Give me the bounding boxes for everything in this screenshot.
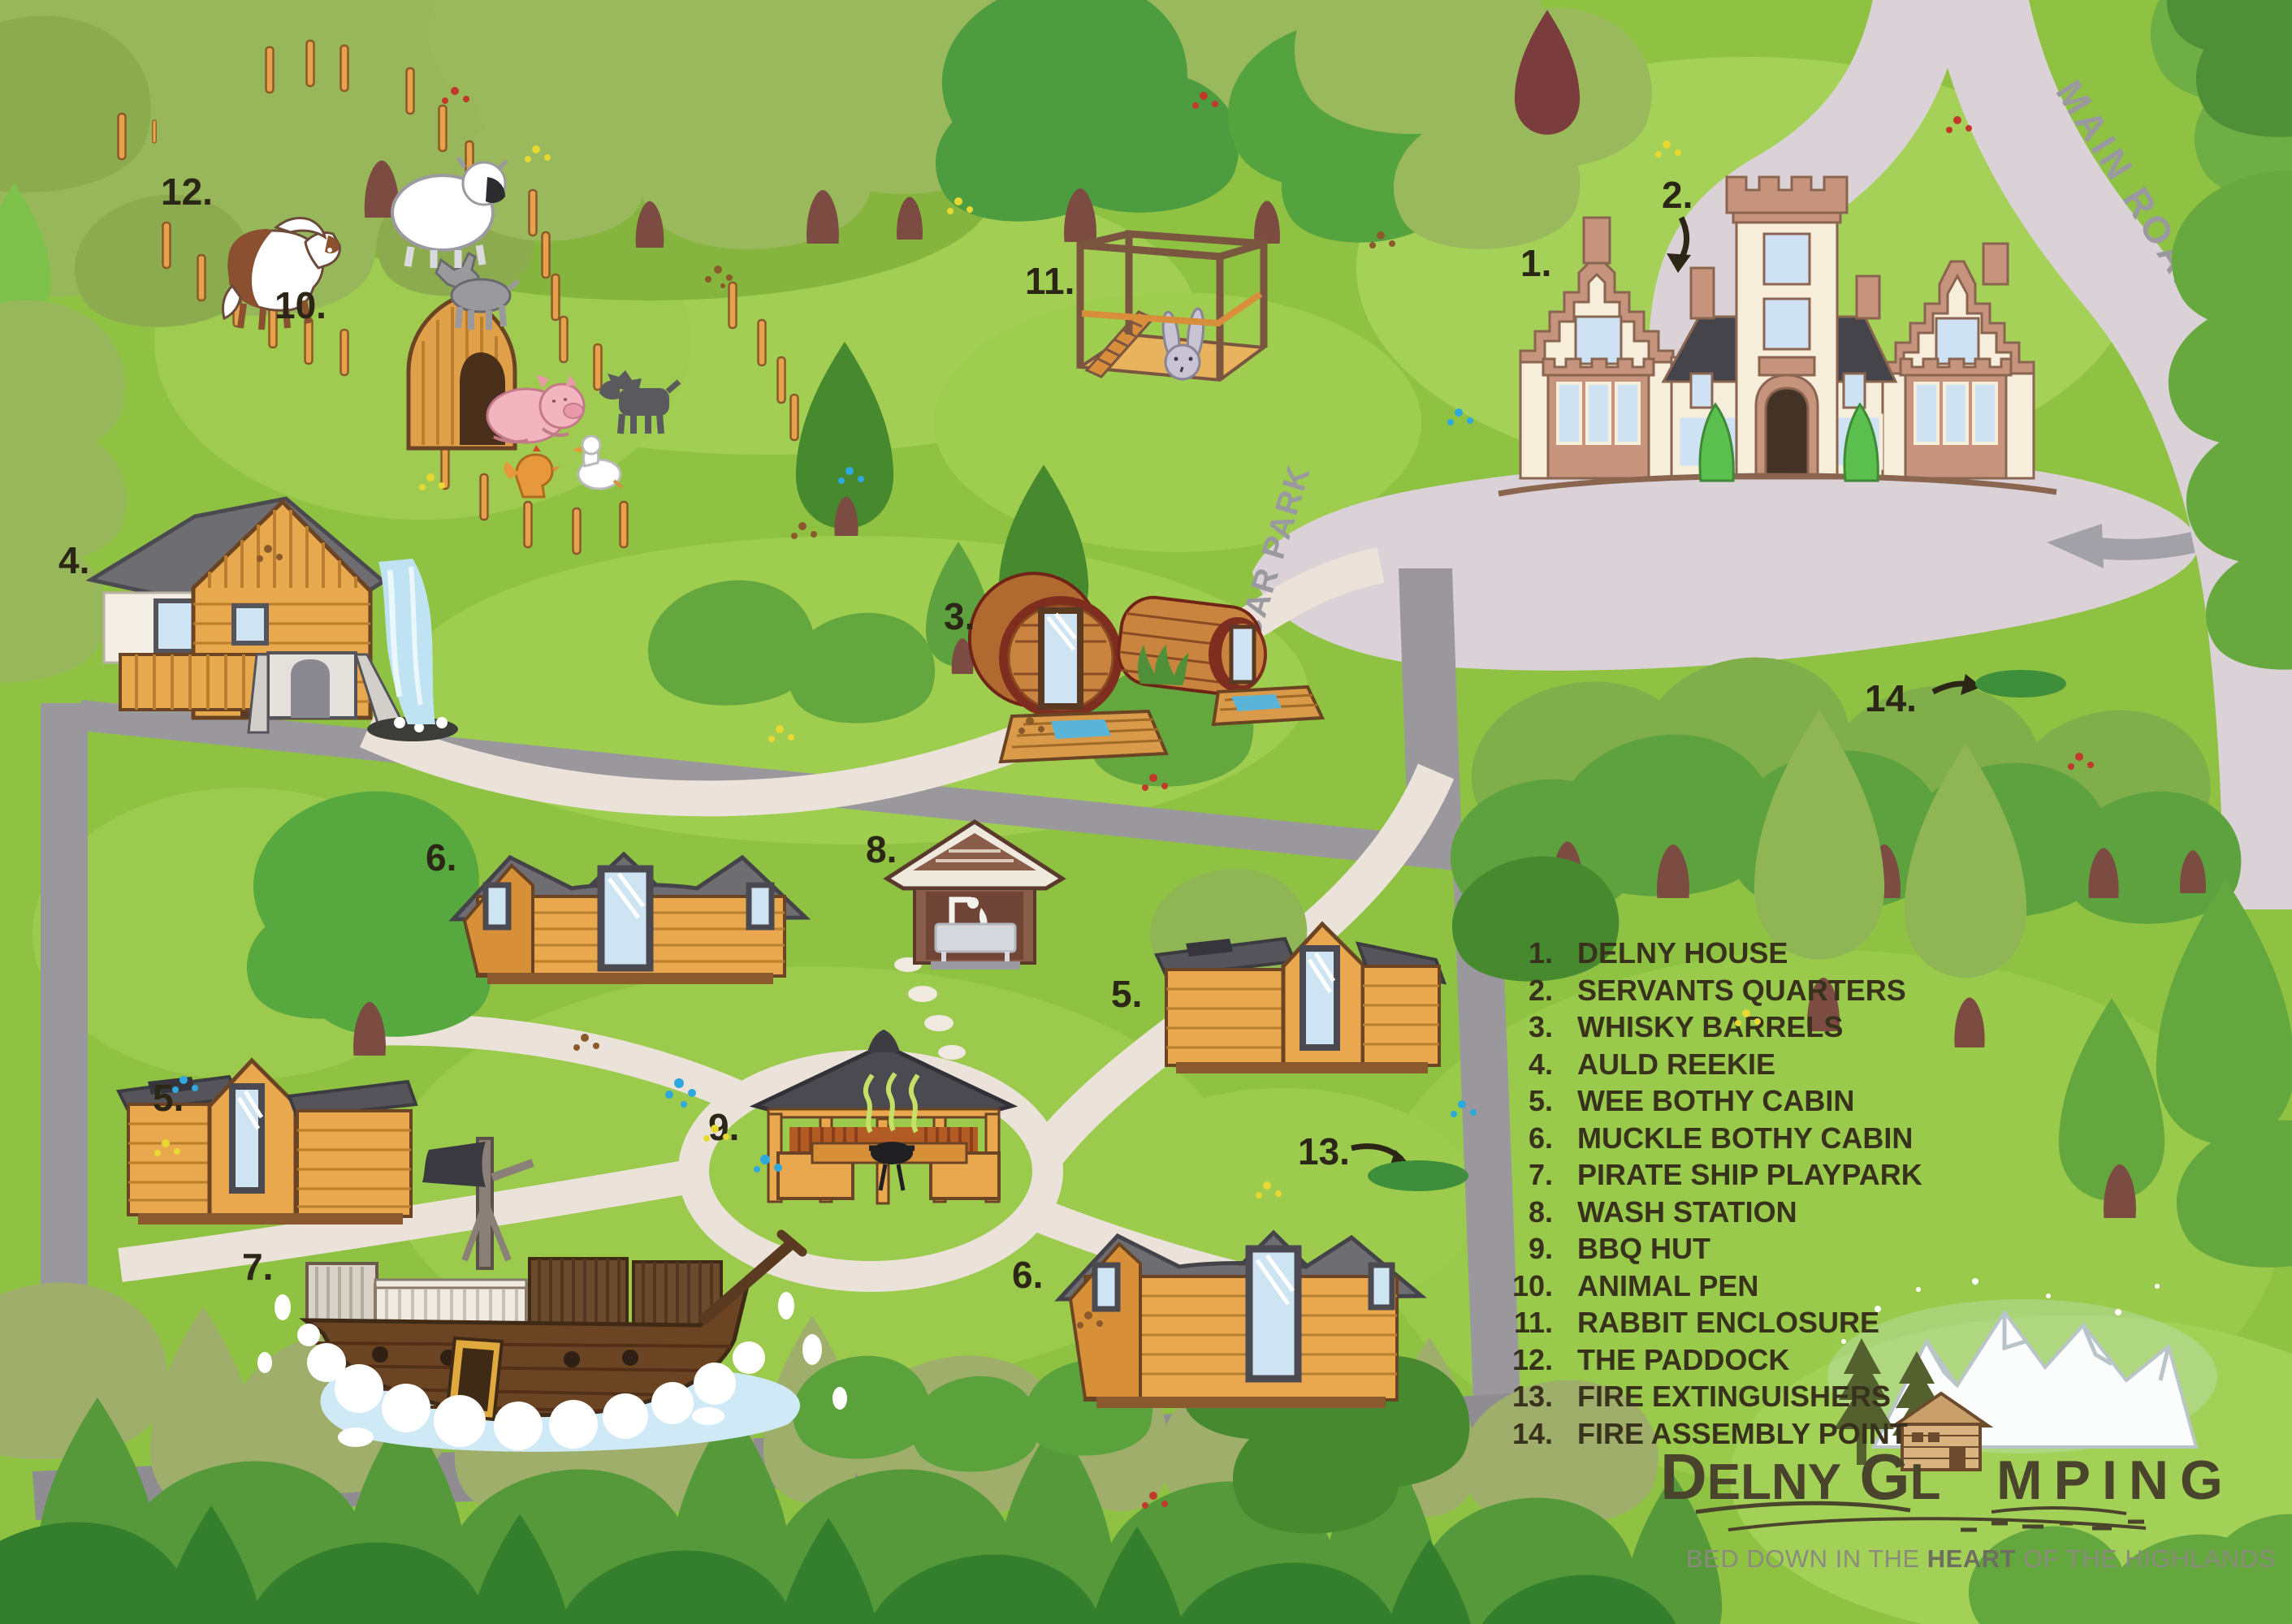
svg-text:8.: 8. (866, 828, 897, 870)
svg-text:ANIMAL PEN: ANIMAL PEN (1577, 1269, 1758, 1302)
svg-text:14.: 14. (1865, 677, 1917, 719)
svg-text:12.: 12. (161, 171, 213, 213)
svg-text:13.: 13. (1298, 1130, 1350, 1173)
svg-text:1.: 1. (1520, 242, 1551, 284)
svg-text:FIRE EXTINGUISHERS: FIRE EXTINGUISHERS (1577, 1380, 1891, 1413)
svg-text:3.: 3. (944, 595, 975, 637)
svg-text:13.: 13. (1512, 1380, 1553, 1413)
svg-text:WASH STATION: WASH STATION (1577, 1195, 1797, 1229)
svg-text:5.: 5. (1111, 973, 1142, 1015)
svg-text:MUCKLE BOTHY CABIN: MUCKLE BOTHY CABIN (1577, 1121, 1913, 1155)
svg-text:AULD REEKIE: AULD REEKIE (1577, 1047, 1775, 1081)
svg-text:5.: 5. (1529, 1084, 1553, 1117)
svg-text:12.: 12. (1512, 1343, 1553, 1376)
svg-text:BED DOWN IN THE HEART OF THE H: BED DOWN IN THE HEART OF THE HIGHLANDS (1686, 1544, 2276, 1573)
svg-text:BBQ HUT: BBQ HUT (1577, 1232, 1710, 1265)
svg-text:2.: 2. (1662, 174, 1693, 216)
svg-text:3.: 3. (1529, 1010, 1553, 1043)
svg-text:PIRATE SHIP PLAYPARK: PIRATE SHIP PLAYPARK (1577, 1158, 1922, 1191)
svg-text:RABBIT ENCLOSURE: RABBIT ENCLOSURE (1577, 1306, 1879, 1339)
svg-text:10.: 10. (1512, 1269, 1553, 1302)
svg-text:MPING: MPING (1996, 1449, 2234, 1511)
svg-text:2.: 2. (1529, 974, 1553, 1007)
svg-text:1.: 1. (1529, 936, 1553, 970)
svg-text:5.: 5. (153, 1077, 184, 1119)
svg-text:WEE BOTHY CABIN: WEE BOTHY CABIN (1577, 1084, 1854, 1117)
svg-text:DELNY HOUSE: DELNY HOUSE (1577, 936, 1788, 970)
svg-text:11.: 11. (1025, 260, 1075, 302)
svg-text:SERVANTS QUARTERS: SERVANTS QUARTERS (1577, 974, 1906, 1007)
svg-text:6.: 6. (1529, 1121, 1553, 1155)
svg-text:WHISKY BARRELS: WHISKY BARRELS (1577, 1010, 1843, 1043)
svg-text:7.: 7. (1529, 1158, 1553, 1191)
svg-text:14.: 14. (1512, 1417, 1553, 1450)
svg-text:THE PADDOCK: THE PADDOCK (1577, 1343, 1789, 1376)
svg-text:4.: 4. (58, 539, 89, 581)
svg-text:10.: 10. (275, 284, 327, 326)
svg-text:9.: 9. (1529, 1232, 1553, 1265)
svg-text:6.: 6. (426, 836, 456, 879)
svg-text:7.: 7. (242, 1246, 273, 1288)
svg-text:6.: 6. (1012, 1254, 1043, 1296)
svg-text:FIRE ASSEMBLY POINT: FIRE ASSEMBLY POINT (1577, 1417, 1908, 1450)
svg-text:4.: 4. (1529, 1047, 1553, 1081)
svg-text:11.: 11. (1514, 1306, 1553, 1339)
svg-text:8.: 8. (1529, 1195, 1553, 1229)
